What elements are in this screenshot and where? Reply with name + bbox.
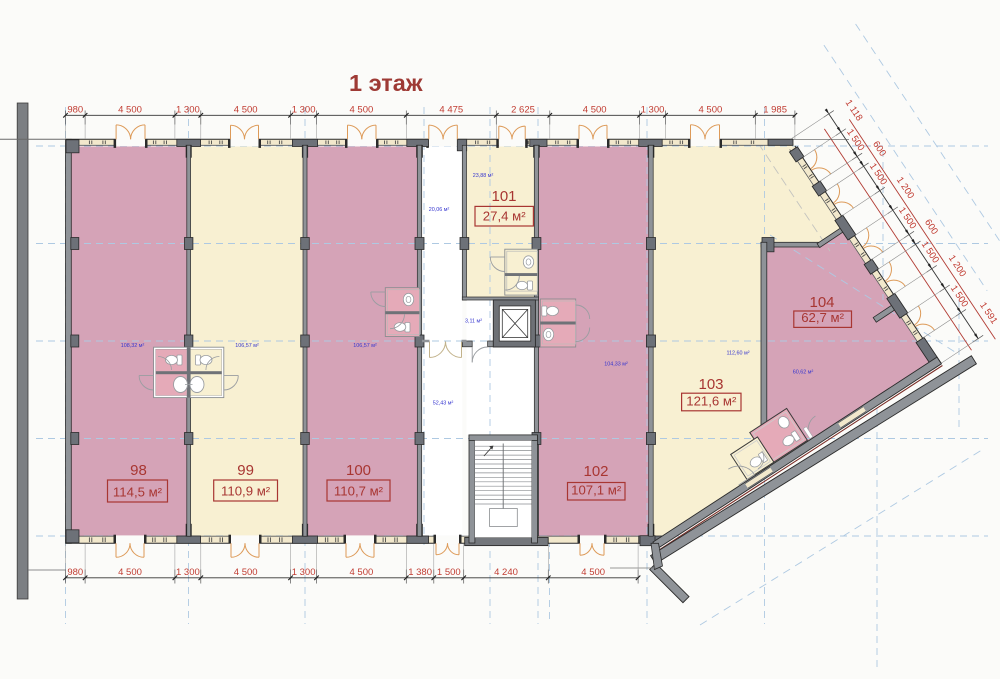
- svg-text:60,62 м²: 60,62 м²: [793, 370, 814, 376]
- svg-text:4 500: 4 500: [234, 104, 258, 115]
- svg-text:1 500: 1 500: [437, 567, 461, 578]
- svg-text:1 300: 1 300: [176, 567, 200, 578]
- svg-text:4 500: 4 500: [118, 104, 142, 115]
- svg-text:121,6 м²: 121,6 м²: [686, 393, 737, 408]
- svg-text:4 500: 4 500: [581, 567, 605, 578]
- svg-text:23,88 м²: 23,88 м²: [473, 173, 494, 179]
- svg-text:1 380: 1 380: [408, 567, 432, 578]
- svg-text:104,33 м²: 104,33 м²: [604, 362, 628, 368]
- svg-text:99: 99: [237, 462, 254, 479]
- svg-text:52,43 м²: 52,43 м²: [433, 401, 454, 407]
- svg-text:3,11 м²: 3,11 м²: [465, 319, 482, 325]
- svg-text:112,60 м²: 112,60 м²: [726, 351, 749, 357]
- svg-text:20,06 м²: 20,06 м²: [429, 207, 450, 213]
- svg-text:106,57 м²: 106,57 м²: [235, 343, 259, 349]
- svg-text:107,1 м²: 107,1 м²: [571, 483, 622, 498]
- svg-text:4 500: 4 500: [699, 104, 723, 115]
- svg-text:110,7 м²: 110,7 м²: [334, 484, 384, 499]
- svg-text:980: 980: [67, 567, 83, 578]
- svg-text:1 300: 1 300: [641, 104, 665, 115]
- svg-text:4 500: 4 500: [583, 104, 607, 115]
- svg-text:2 625: 2 625: [511, 104, 535, 115]
- svg-text:4 500: 4 500: [118, 567, 142, 578]
- svg-text:101: 101: [491, 188, 516, 205]
- svg-text:114,5 м²: 114,5 м²: [113, 485, 163, 500]
- svg-text:1 300: 1 300: [292, 567, 316, 578]
- svg-text:106,57 м²: 106,57 м²: [353, 343, 377, 349]
- svg-text:1 300: 1 300: [176, 104, 200, 115]
- svg-text:62,7 м²: 62,7 м²: [801, 310, 844, 325]
- svg-text:27,4 м²: 27,4 м²: [483, 209, 526, 224]
- svg-text:103: 103: [698, 376, 723, 393]
- svg-text:1 985: 1 985: [763, 104, 787, 115]
- svg-text:100: 100: [346, 462, 371, 479]
- svg-text:1 300: 1 300: [292, 104, 316, 115]
- svg-text:110,9 м²: 110,9 м²: [221, 484, 271, 499]
- svg-text:4 475: 4 475: [439, 104, 463, 115]
- svg-text:4 500: 4 500: [350, 567, 374, 578]
- svg-text:4 500: 4 500: [350, 104, 374, 115]
- svg-text:108,32 м²: 108,32 м²: [121, 343, 145, 349]
- svg-text:102: 102: [583, 463, 608, 480]
- svg-text:104: 104: [809, 294, 834, 311]
- svg-text:4 500: 4 500: [234, 567, 258, 578]
- svg-text:98: 98: [130, 462, 147, 479]
- svg-text:980: 980: [67, 104, 83, 115]
- svg-text:1 этаж: 1 этаж: [349, 70, 423, 96]
- svg-text:4 240: 4 240: [494, 567, 518, 578]
